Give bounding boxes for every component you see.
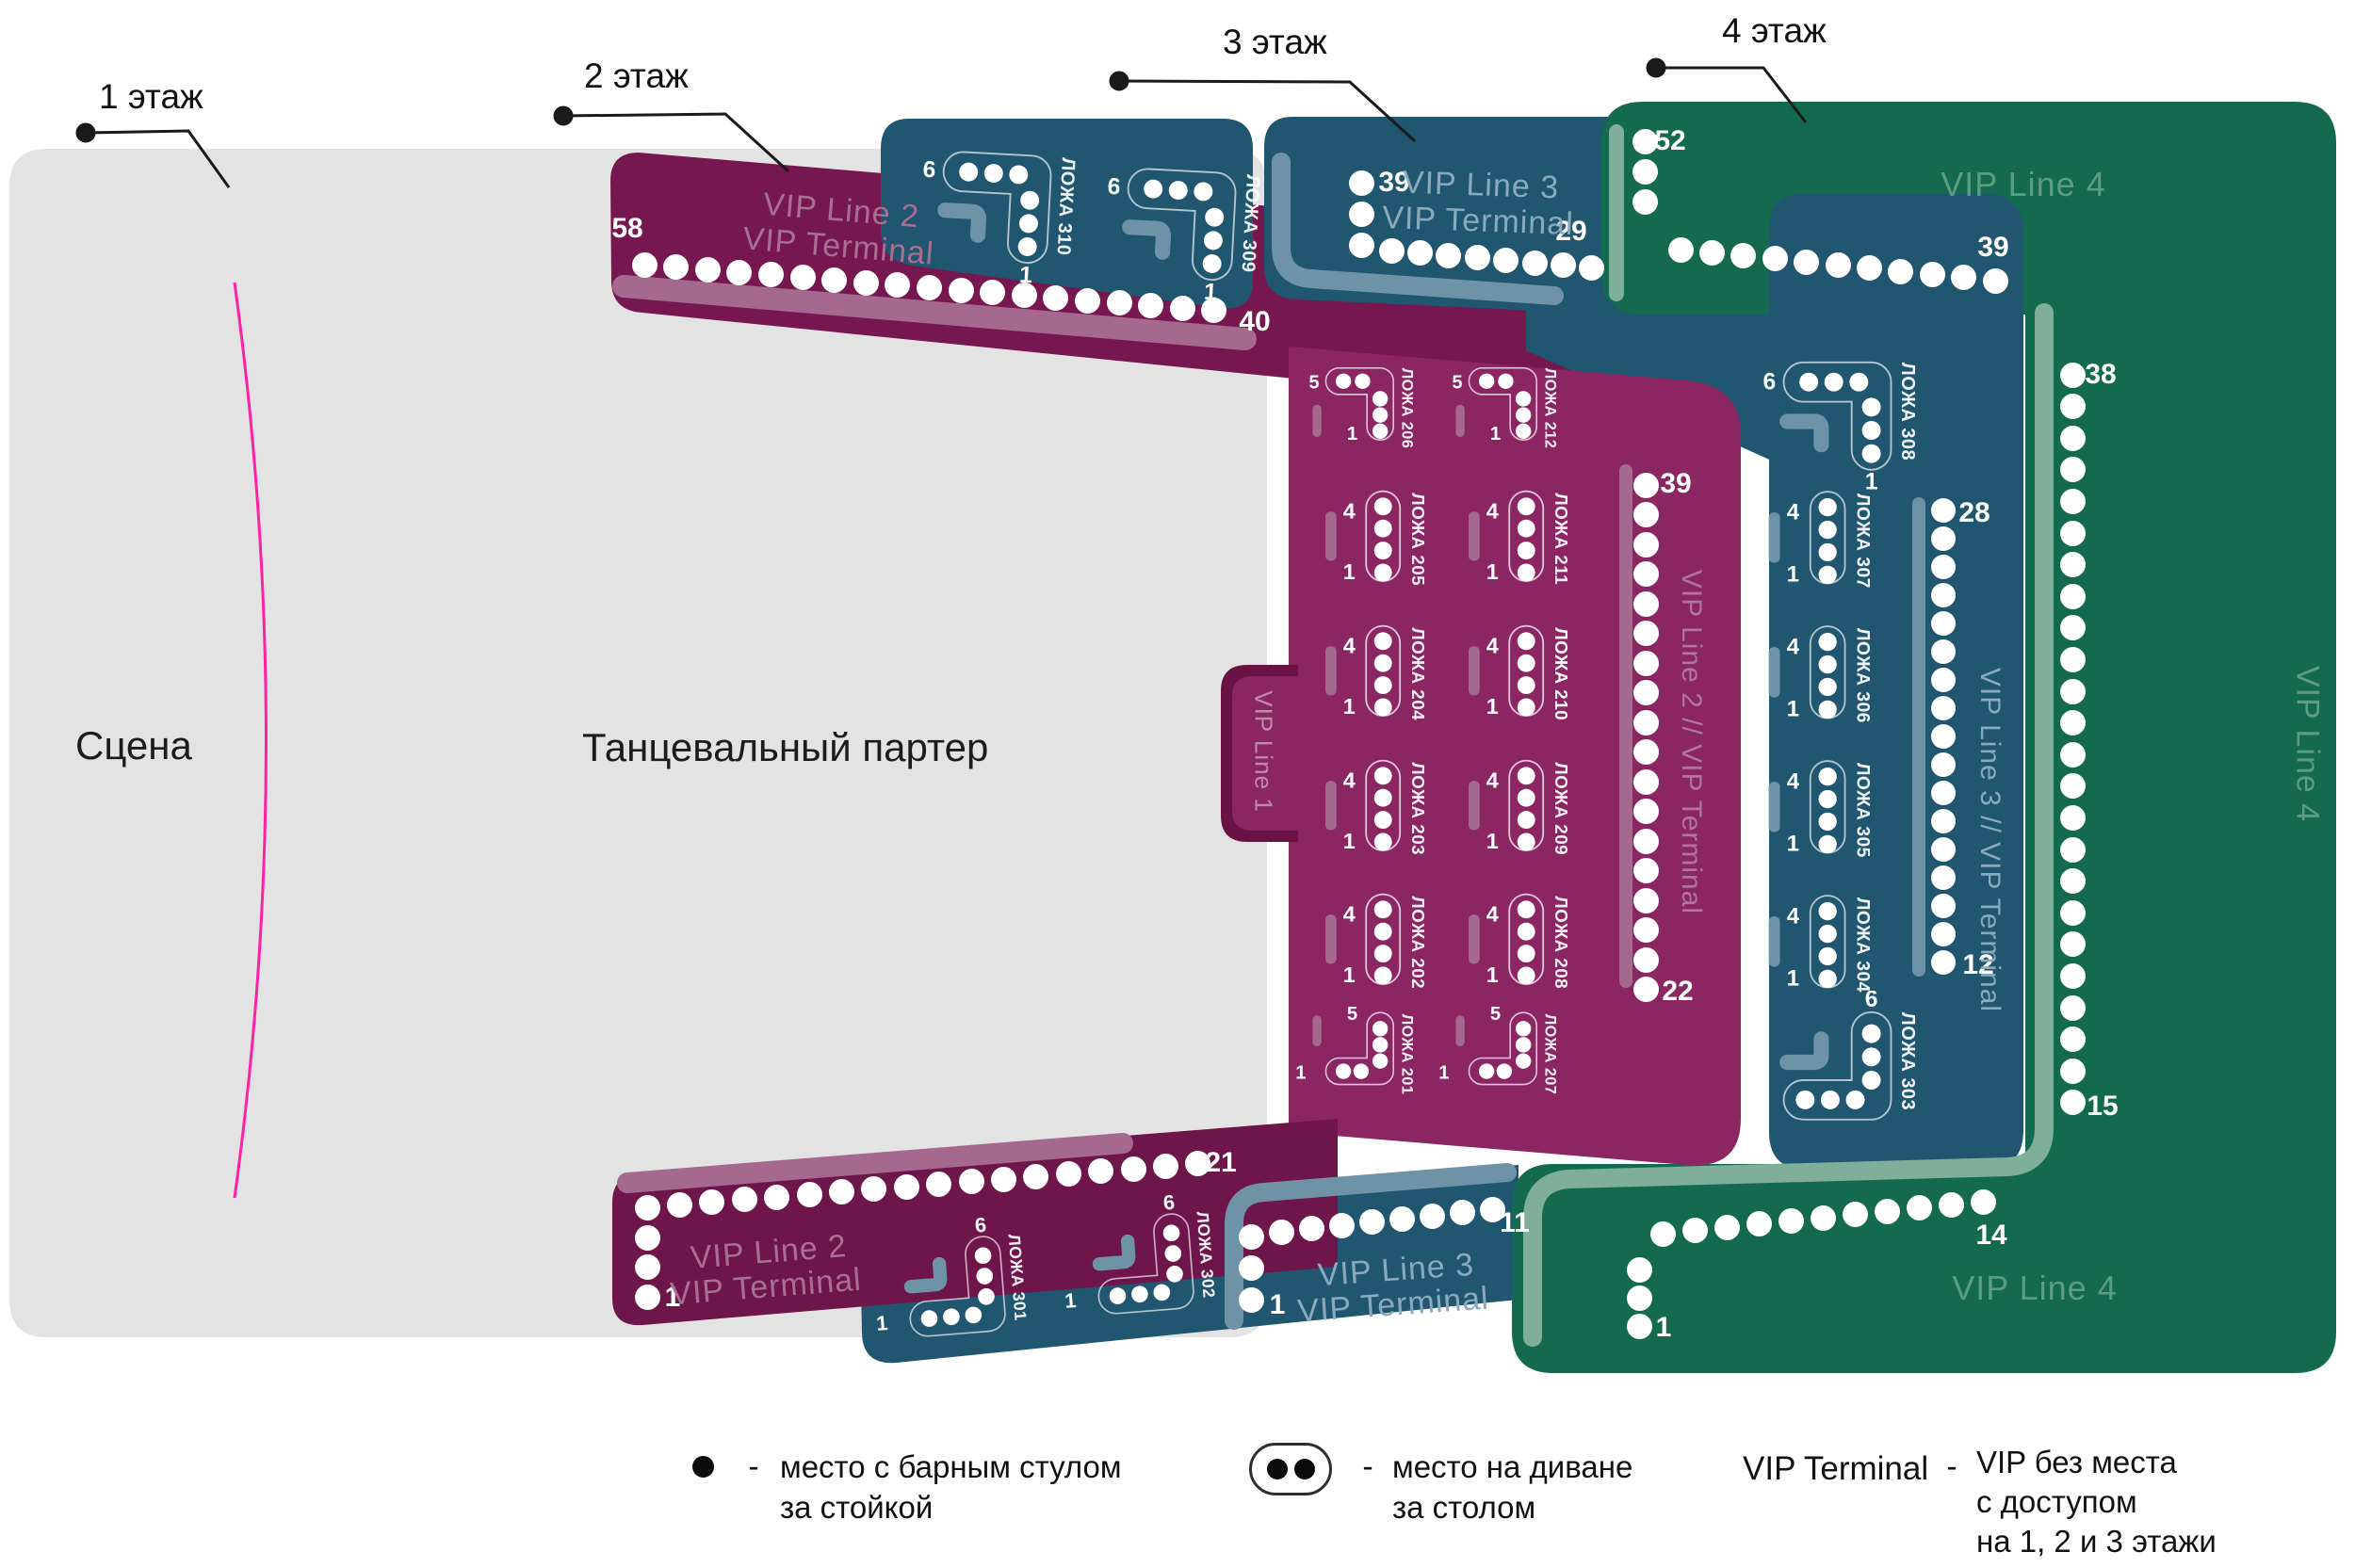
seat-dot[interactable] <box>1205 207 1225 227</box>
seat-dot[interactable] <box>1825 373 1843 392</box>
counter-bar <box>1769 512 1780 562</box>
seat-dot[interactable] <box>1354 1063 1369 1078</box>
box-309[interactable]: 61ЛОЖА 309 <box>1078 144 1264 311</box>
seat-dot[interactable] <box>2060 1026 2086 1052</box>
seat-dot[interactable] <box>2060 615 2086 640</box>
zone-label: VIP Line 3 // VIP Terminal <box>1973 668 2006 1012</box>
seat-number: 15 <box>2087 1091 2118 1123</box>
seat-dot[interactable] <box>1633 739 1659 765</box>
seat-dot[interactable] <box>635 1225 660 1251</box>
seat-dot[interactable] <box>1819 701 1837 719</box>
seat-dot[interactable] <box>1819 633 1837 651</box>
seat-dot[interactable] <box>1372 391 1388 406</box>
seat-dot[interactable] <box>663 254 689 280</box>
box-label: ЛОЖА 309 <box>1238 174 1263 273</box>
seat-dot[interactable] <box>2060 584 2086 609</box>
seat-dot[interactable] <box>1479 374 1494 389</box>
seat-dot[interactable] <box>1875 1199 1900 1224</box>
seat-dot[interactable] <box>2060 521 2086 546</box>
box-201[interactable]: 51ЛОЖА 201 <box>1291 996 1437 1125</box>
seat-dot[interactable] <box>1522 251 1548 276</box>
seat-dot[interactable] <box>1336 1063 1351 1078</box>
seat-dot[interactable] <box>2060 900 2086 926</box>
seat-dot[interactable] <box>926 1172 951 1197</box>
box-307[interactable]: 41ЛОЖА 307 <box>1743 471 1916 623</box>
seat-dot[interactable] <box>1907 1195 1932 1220</box>
seat-number: 5 <box>1347 1004 1357 1025</box>
seat-dot[interactable] <box>1931 526 1956 551</box>
seat-dot[interactable] <box>1518 676 1535 694</box>
box-207[interactable]: 51ЛОЖА 207 <box>1434 996 1581 1125</box>
seat-number: 4 <box>1343 498 1356 523</box>
seat-dot[interactable] <box>1931 865 1956 890</box>
seat-dot[interactable] <box>942 1308 960 1326</box>
seat-dot[interactable] <box>1862 1047 1881 1066</box>
seat-dot[interactable] <box>1020 190 1040 210</box>
seat-dot[interactable] <box>2060 489 2086 514</box>
seat-dot[interactable] <box>1493 248 1519 273</box>
box-305[interactable]: 41ЛОЖА 305 <box>1743 740 1916 893</box>
sofa-icon <box>1787 1039 1821 1062</box>
seat-dot[interactable] <box>1746 1211 1772 1237</box>
seat-dot[interactable] <box>1627 1285 1652 1311</box>
seat-dot[interactable] <box>1130 1285 1148 1303</box>
counter-bar <box>1312 1015 1321 1046</box>
seat-dot[interactable] <box>1633 532 1659 558</box>
seat-dot[interactable] <box>1819 970 1837 988</box>
seat-dot[interactable] <box>1336 374 1351 389</box>
seat-dot[interactable] <box>635 1254 660 1280</box>
zone-label: VIP Line 1 <box>1249 690 1278 813</box>
seat-dot[interactable] <box>1516 1053 1531 1068</box>
seat-dot[interactable] <box>1579 255 1604 281</box>
seat-dot[interactable] <box>1819 498 1837 516</box>
box-306[interactable]: 41ЛОЖА 306 <box>1743 606 1916 758</box>
seat-dot[interactable] <box>1374 923 1392 941</box>
seat-dot[interactable] <box>1826 252 1851 278</box>
seat-dot[interactable] <box>1632 159 1658 185</box>
seat-dot[interactable] <box>1518 564 1535 582</box>
seat-dot[interactable] <box>1162 1224 1180 1242</box>
box-label: ЛОЖА 303 <box>1897 1012 1918 1110</box>
seat-dot[interactable] <box>1633 591 1659 617</box>
seat-dot[interactable] <box>1144 179 1163 199</box>
seat-dot[interactable] <box>764 1185 789 1210</box>
seat-dot[interactable] <box>1819 925 1837 943</box>
seat-dot[interactable] <box>1862 421 1881 440</box>
seat-dot[interactable] <box>1518 655 1535 672</box>
seat-dot[interactable] <box>1778 1208 1804 1234</box>
seat-dot[interactable] <box>920 1310 938 1328</box>
seat-dot[interactable] <box>1931 555 1956 579</box>
box-label: ЛОЖА 210 <box>1551 627 1570 720</box>
seat-dot[interactable] <box>1931 922 1956 946</box>
box-label: ЛОЖА 204 <box>1407 627 1427 720</box>
zone-label: VIP Terminal <box>1382 200 1575 243</box>
seat-dot[interactable] <box>1374 967 1392 985</box>
seat-dot[interactable] <box>1329 1213 1355 1238</box>
seat-dot[interactable] <box>1349 202 1374 227</box>
seat-dot[interactable] <box>1931 752 1956 777</box>
seat-dot[interactable] <box>1379 238 1405 264</box>
legend-vip-terminal-label: VIP Terminal <box>1743 1450 1928 1488</box>
legend-bar-stool-text: место с барным стулом за стойкой <box>780 1447 1122 1528</box>
seat-dot[interactable] <box>1843 1202 1868 1227</box>
seat-dot[interactable] <box>1714 1215 1740 1240</box>
seat-number: 5 <box>1308 373 1319 394</box>
seat-dot[interactable] <box>1633 977 1659 1002</box>
seat-dot[interactable] <box>1931 611 1956 636</box>
seat-dot[interactable] <box>1153 1154 1178 1179</box>
seat-dot[interactable] <box>1931 639 1956 664</box>
seat-dot[interactable] <box>1862 445 1881 463</box>
seat-dot[interactable] <box>2060 363 2086 388</box>
seat-dot[interactable] <box>1355 374 1370 389</box>
seat-dot[interactable] <box>1633 769 1659 795</box>
seat-dot[interactable] <box>1518 923 1535 941</box>
seat-dot[interactable] <box>758 262 784 287</box>
seat-dot[interactable] <box>1633 621 1659 646</box>
seat-dot[interactable] <box>1951 265 1976 290</box>
seat-dot[interactable] <box>1518 811 1535 829</box>
seat-dot[interactable] <box>1633 651 1659 676</box>
seat-dot[interactable] <box>1374 833 1392 851</box>
seat-dot[interactable] <box>1202 254 1222 274</box>
seat-dot[interactable] <box>1349 233 1374 258</box>
seat-dot[interactable] <box>1819 902 1837 920</box>
seat-dot[interactable] <box>1269 1220 1294 1245</box>
seat-dot[interactable] <box>1374 542 1392 559</box>
seat-dot[interactable] <box>991 1167 1016 1192</box>
seat-dot[interactable] <box>1811 1205 1836 1231</box>
counter-bar <box>1325 646 1337 695</box>
counter-bar <box>1455 405 1464 437</box>
seat-dot[interactable] <box>1109 1287 1127 1305</box>
seat-number: 1 <box>1656 1312 1672 1344</box>
seat-dot[interactable] <box>1374 945 1392 962</box>
seat-dot[interactable] <box>1633 917 1659 943</box>
seat-number: 1 <box>1787 697 1799 722</box>
seat-dot[interactable] <box>1795 1091 1814 1109</box>
box-label: ЛОЖА 203 <box>1407 762 1427 855</box>
seat-dot[interactable] <box>1920 262 1945 287</box>
seat-dot[interactable] <box>1349 170 1374 196</box>
seat-dot[interactable] <box>1849 373 1868 392</box>
seat-dot[interactable] <box>1931 498 1956 523</box>
seat-dot[interactable] <box>2060 647 2086 672</box>
seat-dot[interactable] <box>2060 837 2086 863</box>
seat-dot[interactable] <box>829 1179 854 1204</box>
seat-dot[interactable] <box>2060 868 2086 894</box>
seat-number: 4 <box>1787 635 1800 660</box>
seat-dot[interactable] <box>1819 947 1837 965</box>
seat-dot[interactable] <box>2060 457 2086 482</box>
seat-dot[interactable] <box>1931 668 1956 692</box>
seat-dot[interactable] <box>1372 1053 1388 1068</box>
seat-dot[interactable] <box>1633 561 1659 587</box>
seat-dot[interactable] <box>1516 424 1531 439</box>
seat-dot[interactable] <box>977 1287 995 1305</box>
seat-dot[interactable] <box>1819 768 1837 785</box>
seat-dot[interactable] <box>2060 426 2086 451</box>
seat-dot[interactable] <box>1374 699 1392 717</box>
seat-dot[interactable] <box>894 1174 919 1200</box>
seat-dot[interactable] <box>2060 742 2086 768</box>
box-label: ЛОЖА 212 <box>1542 368 1559 449</box>
seat-dot[interactable] <box>1518 789 1535 807</box>
box-303[interactable]: 61ЛОЖА 303 <box>1739 991 1918 1148</box>
seat-dot[interactable] <box>983 164 1003 184</box>
seat-dot[interactable] <box>1518 945 1535 962</box>
seat-dot[interactable] <box>1633 947 1659 973</box>
seat-dot[interactable] <box>726 260 752 285</box>
seat-number: 1 <box>1745 1089 1758 1114</box>
seat-dot[interactable] <box>1518 967 1535 985</box>
seat-dot[interactable] <box>974 1247 992 1265</box>
seat-dot[interactable] <box>1633 829 1659 854</box>
seat-dot[interactable] <box>1165 1265 1183 1283</box>
seat-dot[interactable] <box>1372 1037 1388 1052</box>
seat-dot[interactable] <box>1239 1287 1264 1313</box>
seat-dot[interactable] <box>1730 243 1756 268</box>
seat-dot[interactable] <box>1518 833 1535 851</box>
seat-dot[interactable] <box>1518 900 1535 918</box>
venue-seating-map: 1 этаж 2 этаж 3 этаж 4 этаж Сцена Танцев… <box>0 0 2355 1568</box>
seat-dot[interactable] <box>1821 1091 1840 1109</box>
counter-bar <box>1769 916 1780 966</box>
seat-dot[interactable] <box>1497 1063 1512 1078</box>
seat-number: 4 <box>1486 498 1499 523</box>
legend-line: с доступом <box>1976 1482 2217 1522</box>
seat-dot[interactable] <box>1009 165 1029 185</box>
seat-number: 1 <box>1295 1062 1306 1083</box>
seat-dot[interactable] <box>853 270 879 296</box>
legend-line: VIP без места <box>1976 1443 2217 1482</box>
seat-dot[interactable] <box>1888 259 1913 284</box>
seat-dot[interactable] <box>1931 809 1956 833</box>
seat-dot[interactable] <box>1931 781 1956 805</box>
seat-dot[interactable] <box>1153 1284 1171 1301</box>
seat-dot[interactable] <box>1299 1216 1324 1241</box>
seat-dot[interactable] <box>1389 1206 1415 1232</box>
seat-dot[interactable] <box>1372 407 1388 422</box>
seat-dot[interactable] <box>1518 497 1535 515</box>
seat-dot[interactable] <box>1862 1071 1881 1090</box>
seat-dot[interactable] <box>1168 181 1188 201</box>
box-302[interactable]: 61ЛОЖА 302 <box>1051 1192 1220 1344</box>
seat-dot[interactable] <box>1121 1156 1146 1182</box>
seat-dot[interactable] <box>1374 789 1392 807</box>
seat-number: 40 <box>1239 306 1270 338</box>
seat-dot[interactable] <box>1633 502 1659 527</box>
seat-dot[interactable] <box>1632 189 1658 215</box>
seat-dot[interactable] <box>1164 1245 1182 1263</box>
seat-dot[interactable] <box>1518 699 1535 717</box>
seat-dot[interactable] <box>1436 243 1461 268</box>
seat-dot[interactable] <box>1931 696 1956 720</box>
seat-dot[interactable] <box>1374 900 1392 918</box>
seat-dot[interactable] <box>1407 240 1433 266</box>
seat-dot[interactable] <box>1650 1221 1676 1247</box>
seat-dot[interactable] <box>1931 950 1956 975</box>
seat-dot[interactable] <box>797 1182 822 1207</box>
seat-dot[interactable] <box>1971 1189 1996 1215</box>
seat-dot[interactable] <box>1633 680 1659 705</box>
seat-dot[interactable] <box>1699 240 1725 266</box>
seat-dot[interactable] <box>1518 520 1535 538</box>
seat-dot[interactable] <box>1194 182 1213 202</box>
seat-dot[interactable] <box>1239 1224 1264 1250</box>
box-label: ЛОЖА 310 <box>1053 157 1079 256</box>
seat-dot[interactable] <box>1372 424 1388 439</box>
seat-dot[interactable] <box>1374 632 1392 650</box>
seat-dot[interactable] <box>1023 1164 1048 1189</box>
seat-dot[interactable] <box>1359 1209 1385 1235</box>
seat-dot[interactable] <box>1516 391 1531 406</box>
seat-dot[interactable] <box>1056 1161 1081 1187</box>
seat-dot[interactable] <box>635 1285 660 1310</box>
seat-dot[interactable] <box>1017 237 1037 257</box>
seat-dot[interactable] <box>2060 679 2086 704</box>
seat-dot[interactable] <box>1518 632 1535 650</box>
seat-dot[interactable] <box>2060 710 2086 736</box>
box-210[interactable]: 41ЛОЖА 210 <box>1443 606 1613 754</box>
seat-dot[interactable] <box>2060 1059 2086 1084</box>
seat-dot[interactable] <box>1819 655 1837 673</box>
seat-number: 14 <box>1975 1220 2006 1252</box>
seat-dot[interactable] <box>1794 250 1819 275</box>
counter-bar <box>1325 781 1337 830</box>
seat-dot[interactable] <box>1420 1204 1445 1229</box>
seat-dot[interactable] <box>1018 214 1038 234</box>
seat-dot[interactable] <box>1633 799 1659 824</box>
seat-dot[interactable] <box>959 162 979 182</box>
seat-dot[interactable] <box>699 1189 724 1215</box>
seat-dot[interactable] <box>2060 931 2086 957</box>
seat-dot[interactable] <box>1374 655 1392 672</box>
seat-dot[interactable] <box>1633 473 1659 498</box>
box-212[interactable]: 51ЛОЖА 212 <box>1434 350 1581 479</box>
box-209[interactable]: 41ЛОЖА 209 <box>1443 740 1613 889</box>
seat-dot[interactable] <box>1374 767 1392 784</box>
seat-dot[interactable] <box>1551 252 1576 278</box>
seat-dot[interactable] <box>1819 678 1837 696</box>
seat-number: 22 <box>1662 976 1693 1008</box>
counter-bar <box>1469 511 1480 560</box>
seat-dot[interactable] <box>2060 963 2086 989</box>
box-label: ЛОЖА 307 <box>1852 493 1872 589</box>
seat-dot[interactable] <box>695 257 721 283</box>
seat-dot[interactable] <box>2060 552 2086 577</box>
seat-dot[interactable] <box>959 1169 984 1194</box>
box-label: ЛОЖА 206 <box>1399 368 1416 449</box>
seat-dot[interactable] <box>1931 724 1956 749</box>
counter-bar <box>1469 781 1480 830</box>
bar-stool-seat-icon <box>692 1456 714 1478</box>
box-206[interactable]: 51ЛОЖА 206 <box>1291 350 1437 479</box>
seat-dot[interactable] <box>1627 1314 1652 1339</box>
seat-dot[interactable] <box>1516 407 1531 422</box>
seat-dot[interactable] <box>2060 773 2086 799</box>
seat-dot[interactable] <box>1762 246 1788 271</box>
seat-dot[interactable] <box>732 1187 757 1212</box>
seat-dot[interactable] <box>2060 1090 2086 1115</box>
seat-dot[interactable] <box>1633 710 1659 736</box>
seat-dot[interactable] <box>1682 1218 1708 1243</box>
seat-dot[interactable] <box>1633 888 1659 913</box>
zone-label: VIP Line 4 <box>1952 1269 2117 1308</box>
seat-dot[interactable] <box>861 1176 886 1202</box>
seat-dot[interactable] <box>1450 1200 1475 1225</box>
seat-dot[interactable] <box>2060 995 2086 1021</box>
seat-dot[interactable] <box>1931 894 1956 918</box>
seat-dot[interactable] <box>1819 521 1837 539</box>
seat-dot[interactable] <box>1983 268 2008 294</box>
seat-number: 6 <box>1865 991 1878 1012</box>
seat-dot[interactable] <box>1939 1192 1964 1218</box>
seat-dot[interactable] <box>1498 374 1513 389</box>
legend-line: место с барным стулом <box>780 1447 1122 1487</box>
seat-dot[interactable] <box>1846 1091 1865 1109</box>
seat-dot[interactable] <box>1819 543 1837 561</box>
seat-dot[interactable] <box>1516 1021 1531 1036</box>
seat-dot[interactable] <box>1088 1158 1113 1184</box>
seat-dot[interactable] <box>1465 245 1490 270</box>
seat-dot[interactable] <box>1633 858 1659 883</box>
seat-number: 1 <box>875 1311 888 1335</box>
box-211[interactable]: 41ЛОЖА 211 <box>1443 471 1613 620</box>
seat-dot[interactable] <box>1518 542 1535 559</box>
seat-dot[interactable] <box>1668 237 1694 263</box>
seat-dot[interactable] <box>1239 1255 1264 1281</box>
seat-dot[interactable] <box>821 267 847 293</box>
seat-dot[interactable] <box>1857 255 1882 281</box>
seat-dot[interactable] <box>1374 497 1392 515</box>
seat-dot[interactable] <box>1819 813 1837 831</box>
seat-dot[interactable] <box>667 1192 692 1218</box>
seat-dot[interactable] <box>1819 790 1837 808</box>
seat-dot[interactable] <box>1374 811 1392 829</box>
seat-dot[interactable] <box>1372 1021 1388 1036</box>
seat-dot[interactable] <box>1374 676 1392 694</box>
seat-number: 6 <box>1762 369 1776 395</box>
seat-dot[interactable] <box>1203 231 1223 251</box>
seat-dot[interactable] <box>1931 837 1956 862</box>
seat-dot[interactable] <box>635 1195 660 1220</box>
seat-dot[interactable] <box>1518 767 1535 784</box>
box-310[interactable]: 61ЛОЖА 310 <box>893 127 1080 294</box>
seat-dot[interactable] <box>2060 805 2086 831</box>
seat-dot[interactable] <box>1819 835 1837 853</box>
seat-dot[interactable] <box>965 1306 983 1324</box>
seat-dot[interactable] <box>2060 394 2086 419</box>
seat-dot[interactable] <box>1862 1025 1881 1043</box>
seat-dot[interactable] <box>790 265 816 290</box>
box-301[interactable]: 61ЛОЖА 301 <box>863 1215 1031 1366</box>
seat-dot[interactable] <box>1627 1257 1652 1283</box>
seat-dot[interactable] <box>1799 373 1818 392</box>
seat-dot[interactable] <box>1374 520 1392 538</box>
box-label: ЛОЖА 305 <box>1852 763 1872 858</box>
seat-dot[interactable] <box>1516 1037 1531 1052</box>
seat-dot[interactable] <box>1374 564 1392 582</box>
seat-dot[interactable] <box>976 1268 994 1285</box>
seat-dot[interactable] <box>1479 1063 1494 1078</box>
seat-dot[interactable] <box>1862 397 1881 416</box>
seat-dot[interactable] <box>1819 566 1837 584</box>
seat-dot[interactable] <box>632 252 658 278</box>
seat-dot[interactable] <box>1931 583 1956 607</box>
